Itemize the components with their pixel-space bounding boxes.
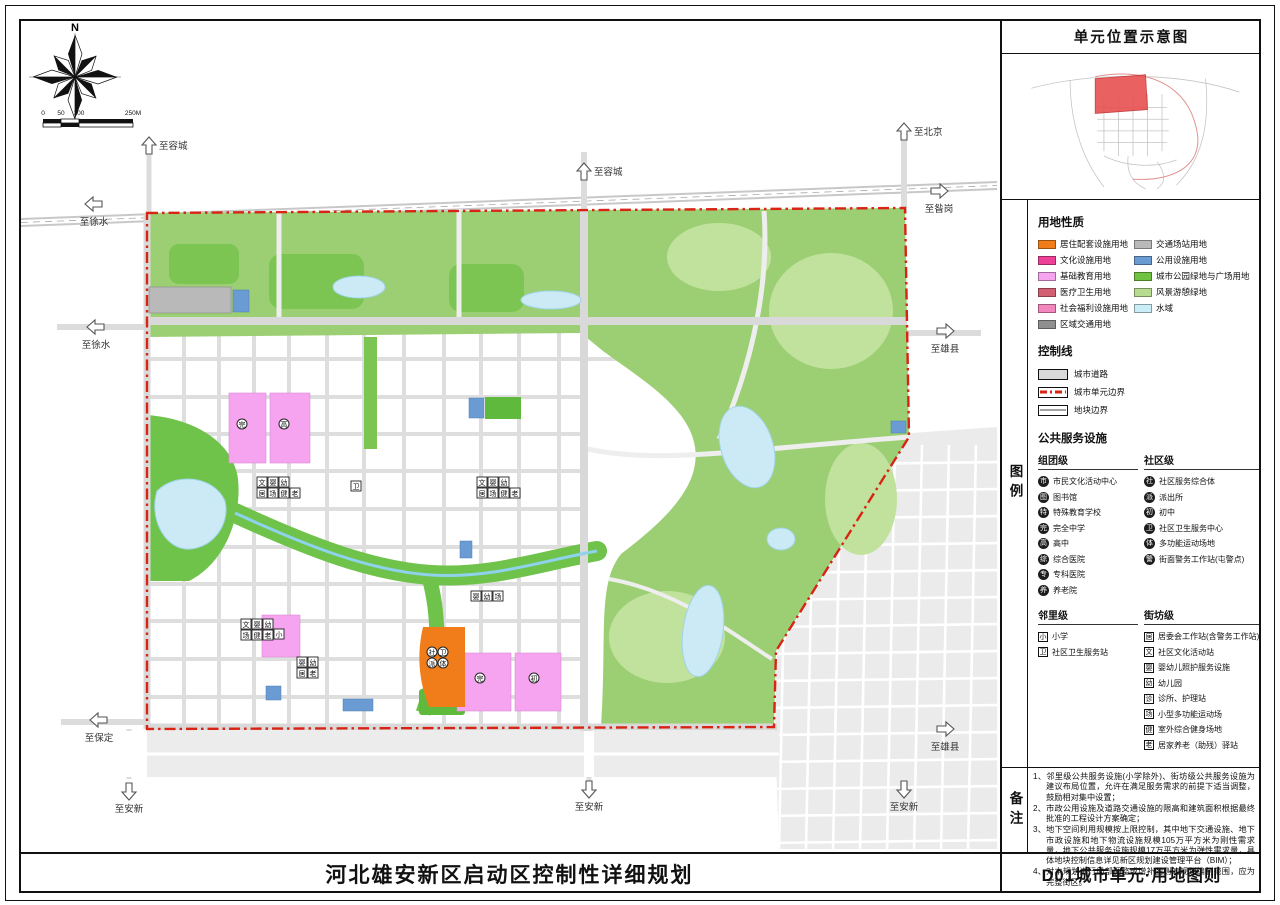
- facility-icon: 社: [1144, 476, 1155, 487]
- facility-marker-char: 健: [501, 489, 508, 498]
- facility-marker-char: 居: [479, 490, 486, 498]
- facility-label: 多功能运动场地: [1159, 538, 1215, 549]
- facility-legend-item: 卫社区卫生服务站: [1038, 645, 1138, 661]
- note-item: 2、市政公用设施及道路交通设施的限高和建筑面积根据最终批准的工程设计方案确定；: [1033, 804, 1255, 825]
- facility-marker-char: 健: [281, 489, 288, 498]
- facility-legend-item: 综综合医院: [1038, 552, 1138, 568]
- facility-legend-item: 居居委会工作站(含警务工作站): [1144, 629, 1259, 645]
- facility-marker-char: 社: [429, 648, 436, 657]
- facility-icon: 高: [1038, 538, 1049, 549]
- facility-legend-item: 健室外综合健身场地: [1144, 722, 1259, 738]
- legend-side-label: 图例: [1002, 200, 1028, 767]
- facility-marker-char: 文: [479, 478, 486, 487]
- facility-marker-cluster: 卫: [351, 481, 361, 491]
- note-item: 1、邻里级公共服务设施(小学除外)、街坊级公共服务设施为建议布局位置，允许在满足…: [1033, 772, 1255, 803]
- facility-marker-char: 幼: [265, 620, 272, 629]
- facility-label: 专科医院: [1053, 569, 1085, 580]
- land-use-title: 用地性质: [1038, 214, 1253, 230]
- south-fringe-strip: [124, 731, 779, 777]
- facility-marker-cluster: 文婴幼居场健老: [477, 477, 520, 498]
- land-use-label: 风景游憩绿地: [1156, 286, 1207, 298]
- facility-label: 诊所、护理站: [1158, 693, 1206, 704]
- master-plan-map: N 至容城至徐水至容城至北京至昝岗至徐水至雄县至保定至雄县至安新至安新至安新文婴…: [19, 19, 1000, 852]
- legend-panel: 图例 用地性质 居住配套设施用地文化设施用地基础教育用地医疗卫生用地社会福利设施…: [1000, 200, 1261, 768]
- facility-marker-char: 婴: [490, 479, 497, 487]
- facility-group: 街坊级居居委会工作站(含警务工作站)文社区文化活动站婴婴幼儿照护服务设施幼幼儿园…: [1144, 607, 1259, 753]
- land-use-label: 交通场站用地: [1156, 238, 1207, 250]
- direction-arrow: 至保定: [85, 713, 114, 744]
- facility-marker-char: 文: [259, 478, 266, 487]
- facility-group-title: 邻里级: [1038, 607, 1138, 625]
- notes-list: 1、邻里级公共服务设施(小学除外)、街坊级公共服务设施为建议布局位置，允许在满足…: [1028, 769, 1260, 851]
- facility-label: 幼儿园: [1158, 678, 1182, 689]
- facility-marker-char: 派: [429, 660, 436, 668]
- land-use-label: 医疗卫生用地: [1060, 286, 1111, 298]
- facility-label: 社区文化活动站: [1158, 647, 1214, 658]
- facility-marker-char: 老: [265, 631, 272, 640]
- facility-marker-cluster: 高: [279, 419, 289, 429]
- facility-icon: 综: [1038, 554, 1049, 565]
- land-use-label: 社会福利设施用地: [1060, 302, 1128, 314]
- facility-marker-char: 高: [281, 420, 288, 429]
- transport-station-block: [149, 287, 231, 313]
- facility-marker-char: 卫: [440, 649, 447, 657]
- sheet-title: D01城市单元·用地图则: [1042, 862, 1222, 886]
- facility-label: 养老院: [1053, 585, 1077, 596]
- facility-legend-item: 场小型多功能运动场: [1144, 707, 1259, 723]
- arrow-label: 至徐水: [80, 216, 109, 228]
- land-use-swatch: [1038, 240, 1056, 249]
- main-title: 河北雄安新区启动区控制性详细规划: [326, 859, 694, 889]
- arrow-glyph: [85, 197, 102, 211]
- scale-label: 0: [41, 110, 45, 117]
- facility-marker-char: 幼: [501, 478, 508, 487]
- facility-icon: 图: [1038, 492, 1049, 503]
- facility-label: 初中: [1159, 507, 1175, 518]
- facility-marker-cluster: 初: [529, 673, 539, 683]
- direction-arrow: 至容城: [577, 163, 623, 180]
- control-line-label: 地块边界: [1074, 404, 1108, 416]
- scale-label: 250M: [125, 110, 141, 117]
- land-use-label: 文化设施用地: [1060, 254, 1111, 266]
- facility-legend-item: 体多功能运动场地: [1144, 536, 1259, 552]
- land-use-swatch: [1038, 256, 1056, 265]
- facility-label: 派出所: [1159, 492, 1183, 503]
- facility-icon: 婴: [1144, 663, 1154, 673]
- direction-arrow: 至徐水: [80, 197, 109, 228]
- arrow-label: 至北京: [914, 126, 943, 138]
- facility-legend-item: 图图书馆: [1038, 490, 1138, 506]
- arrow-label: 至昝岗: [925, 203, 954, 215]
- facility-marker-char: 小: [276, 630, 283, 639]
- direction-arrow: 至昝岗: [925, 184, 954, 215]
- direction-arrow: 至雄县: [931, 324, 960, 355]
- land-use-swatch: [1134, 288, 1152, 297]
- facility-marker-char: 场: [495, 592, 502, 601]
- facility-marker-char: 文: [243, 620, 250, 629]
- facility-icon: 初: [1144, 507, 1155, 518]
- arrow-label: 至容城: [594, 166, 623, 178]
- land-use-legend-item: 医疗卫生用地: [1038, 284, 1134, 300]
- facility-legend-item: 社社区服务综合体: [1144, 474, 1259, 490]
- facility-marker-char: 老: [310, 669, 317, 678]
- arrow-label: 至雄县: [931, 343, 960, 355]
- facility-label: 街面警务工作站(屯警点): [1159, 554, 1244, 565]
- facility-group: 邻里级小小学卫社区卫生服务站: [1038, 607, 1138, 660]
- control-line-legend-item: 地块边界: [1038, 401, 1253, 419]
- facility-icon: 市: [1038, 476, 1049, 487]
- facility-marker-char: 居: [259, 490, 266, 498]
- control-line-legend-item: 城市单元边界: [1038, 383, 1253, 401]
- land-use-legend-item: 交通场站用地: [1134, 236, 1253, 252]
- facility-label: 高中: [1053, 538, 1069, 549]
- green-strip: [364, 337, 377, 449]
- land-use-legend-item: 文化设施用地: [1038, 252, 1134, 268]
- facility-legend-item: 特特殊教育学校: [1038, 505, 1138, 521]
- facility-label: 社区服务综合体: [1159, 476, 1215, 487]
- facility-legend-item: 专专科医院: [1038, 567, 1138, 583]
- location-panel: 单元位置示意图: [1000, 19, 1261, 200]
- facility-marker-char: 健: [254, 631, 261, 640]
- facility-marker-char: 幼: [310, 658, 317, 667]
- facility-marker-char: 场: [243, 631, 250, 640]
- facility-marker-char: 老: [512, 489, 519, 498]
- facility-label: 居委会工作站(含警务工作站): [1158, 631, 1259, 642]
- education-blocks: [229, 393, 561, 711]
- control-line-swatch: [1038, 405, 1068, 416]
- facility-group: 组团级市市民文化活动中心图图书馆特特殊教育学校完完全中学高高中综综合医院专专科医…: [1038, 452, 1138, 598]
- arrow-glyph: [897, 123, 911, 140]
- facility-legend-item: 市市民文化活动中心: [1038, 474, 1138, 490]
- facility-label: 市民文化活动中心: [1053, 476, 1117, 487]
- land-use-legend-item: 水域: [1134, 300, 1253, 316]
- land-use-legend-item: 风景游憩绿地: [1134, 284, 1253, 300]
- facility-icon: 文: [1144, 647, 1154, 657]
- land-use-swatch: [1038, 272, 1056, 281]
- facility-icon: 场: [1144, 709, 1154, 719]
- facility-legend-item: 小小学: [1038, 629, 1138, 645]
- direction-arrow: 至容城: [142, 137, 188, 154]
- arrow-label: 至保定: [85, 732, 114, 744]
- facility-group-title: 街坊级: [1144, 607, 1259, 625]
- facility-marker-cluster: 完: [475, 673, 485, 683]
- facility-icon: 完: [1038, 523, 1049, 534]
- land-use-swatch: [1134, 240, 1152, 249]
- control-line-swatch: [1038, 387, 1068, 398]
- facility-legend-item: 完完全中学: [1038, 521, 1138, 537]
- facility-marker-cluster: 小: [274, 629, 284, 639]
- arrow-glyph: [577, 163, 591, 180]
- facility-legend-item: 老居家养老（助残）驿站: [1144, 738, 1259, 754]
- land-use-legend-item: 社会福利设施用地: [1038, 300, 1134, 316]
- arrow-label: 至安新: [115, 803, 144, 815]
- facility-label: 综合医院: [1053, 554, 1085, 565]
- arrow-label: 至雄县: [931, 741, 960, 753]
- scale-label: 100: [74, 110, 85, 117]
- land-use-label: 区域交通用地: [1060, 318, 1111, 330]
- facility-marker-cluster: 完: [237, 419, 247, 429]
- scale-bar: [43, 119, 133, 127]
- arrow-label: 至安新: [575, 801, 604, 813]
- facility-legend-item: 高高中: [1038, 536, 1138, 552]
- land-use-label: 基础教育用地: [1060, 270, 1111, 282]
- facility-marker-char: 婴: [299, 659, 306, 667]
- facility-marker-cluster: 婴幼场: [471, 591, 503, 601]
- facility-icon: 小: [1038, 632, 1048, 642]
- facility-marker-char: 婴: [254, 621, 261, 629]
- direction-arrow: 至安新: [115, 783, 144, 815]
- facilities-title: 公共服务设施: [1038, 430, 1253, 446]
- land-use-swatch: [1134, 304, 1152, 313]
- main-title-cell: 河北雄安新区启动区控制性详细规划: [19, 852, 1000, 893]
- scale-label: 50: [57, 110, 65, 117]
- facility-group-title: 组团级: [1038, 452, 1138, 470]
- facility-legend-item: 幼幼儿园: [1144, 676, 1259, 692]
- land-use-label: 水域: [1156, 302, 1173, 314]
- facility-marker-char: 居: [299, 670, 306, 678]
- control-lines-title: 控制线: [1038, 343, 1253, 359]
- facility-legend-item: 卫社区卫生服务中心: [1144, 521, 1259, 537]
- land-use-swatch: [1134, 256, 1152, 265]
- facility-marker-char: 幼: [484, 592, 491, 601]
- facility-icon: 专: [1038, 569, 1049, 580]
- land-use-swatch: [1038, 320, 1056, 329]
- arrow-glyph: [582, 781, 596, 798]
- facility-label: 完全中学: [1053, 523, 1085, 534]
- facility-group: 社区级社社区服务综合体派派出所初初中卫社区卫生服务中心体多功能运动场地警街面警务…: [1144, 452, 1259, 567]
- direction-arrow: 至安新: [575, 781, 604, 813]
- facility-marker-char: 幼: [281, 478, 288, 487]
- facility-label: 居家养老（助残）驿站: [1158, 740, 1238, 751]
- facility-label: 小学: [1052, 631, 1068, 642]
- facility-icon: 养: [1038, 585, 1049, 596]
- land-use-legend-item: 城市公园绿地与广场用地: [1134, 268, 1253, 284]
- land-use-legend-item: 公用设施用地: [1134, 252, 1253, 268]
- facility-marker-char: 初: [531, 674, 538, 683]
- facility-icon: 诊: [1144, 694, 1154, 704]
- facility-marker-char: 体: [440, 659, 447, 668]
- facility-marker-char: 婴: [473, 593, 480, 601]
- control-line-label: 城市单元边界: [1074, 386, 1125, 398]
- park-block: [485, 397, 521, 419]
- facility-marker-char: 婴: [270, 479, 277, 487]
- mini-map-unit-highlight: [1095, 75, 1147, 114]
- arrow-label: 至徐水: [82, 339, 111, 351]
- control-line-swatch: [1038, 369, 1068, 380]
- facility-group-title: 社区级: [1144, 452, 1259, 470]
- control-lines-legend: 城市道路城市单元边界地块边界: [1038, 365, 1253, 419]
- facility-label: 特殊教育学校: [1053, 507, 1101, 518]
- location-mini-map: [1012, 58, 1252, 194]
- facility-legend-item: 文社区文化活动站: [1144, 645, 1259, 661]
- arrow-glyph: [122, 783, 136, 800]
- control-line-label: 城市道路: [1074, 368, 1108, 380]
- facility-marker-char: 卫: [353, 483, 360, 491]
- facility-label: 小型多功能运动场: [1158, 709, 1222, 720]
- facility-legend-item: 初初中: [1144, 505, 1259, 521]
- facility-icon: 健: [1144, 725, 1154, 735]
- facility-icon: 居: [1144, 632, 1154, 642]
- facility-icon: 体: [1144, 538, 1155, 549]
- facility-label: 婴幼儿照护服务设施: [1158, 662, 1230, 673]
- facility-marker-char: 老: [292, 489, 299, 498]
- sheet-title-cell: D01城市单元·用地图则: [1000, 852, 1261, 893]
- facility-icon: 幼: [1144, 678, 1154, 688]
- arrow-glyph: [142, 137, 156, 154]
- land-use-legend: 居住配套设施用地文化设施用地基础教育用地医疗卫生用地社会福利设施用地区域交通用地…: [1038, 236, 1253, 332]
- facility-legend-item: 派派出所: [1144, 490, 1259, 506]
- facility-icon: 老: [1144, 740, 1154, 750]
- facility-legend-item: 养养老院: [1038, 583, 1138, 599]
- facility-icon: 卫: [1144, 523, 1155, 534]
- land-use-swatch: [1038, 288, 1056, 297]
- facility-marker-cluster: 文婴幼居场健老: [257, 477, 300, 498]
- land-use-label: 居住配套设施用地: [1060, 238, 1128, 250]
- facility-label: 社区卫生服务站: [1052, 647, 1108, 658]
- arrow-glyph: [87, 320, 104, 334]
- arrow-glyph: [931, 184, 948, 198]
- land-use-legend-item: 基础教育用地: [1038, 268, 1134, 284]
- facility-icon: 卫: [1038, 647, 1048, 657]
- land-use-legend-item: 居住配套设施用地: [1038, 236, 1134, 252]
- facility-marker-char: 场: [490, 489, 497, 498]
- control-line-legend-item: 城市道路: [1038, 365, 1253, 383]
- land-use-swatch: [1134, 272, 1152, 281]
- land-use-label: 公用设施用地: [1156, 254, 1207, 266]
- facility-icon: 特: [1038, 507, 1049, 518]
- notes-panel: 备注 1、邻里级公共服务设施(小学除外)、街坊级公共服务设施为建议布局位置，允许…: [1000, 768, 1261, 852]
- facility-marker-char: 完: [477, 674, 484, 683]
- facility-label: 图书馆: [1053, 492, 1077, 503]
- land-use-swatch: [1038, 304, 1056, 313]
- facility-legend-item: 诊诊所、护理站: [1144, 691, 1259, 707]
- facility-marker-char: 完: [239, 420, 246, 429]
- direction-arrow: 至北京: [897, 123, 943, 140]
- facility-legend-item: 婴婴幼儿照护服务设施: [1144, 660, 1259, 676]
- location-diagram-title: 单元位置示意图: [1002, 19, 1261, 54]
- arrow-label: 至安新: [890, 801, 919, 813]
- notes-side-label: 备注: [1002, 768, 1028, 852]
- facility-legend-item: 警街面警务工作站(屯警点): [1144, 552, 1259, 568]
- facilities-legend: 组团级市市民文化活动中心图图书馆特特殊教育学校完完全中学高高中综综合医院专专科医…: [1038, 452, 1253, 753]
- legend-content: 用地性质 居住配套设施用地文化设施用地基础教育用地医疗卫生用地社会福利设施用地区…: [1028, 200, 1261, 767]
- facility-label: 社区卫生服务中心: [1159, 523, 1223, 534]
- facility-marker-char: 场: [270, 489, 277, 498]
- compass-north-label: N: [71, 22, 79, 34]
- plan-sheet: N 至容城至徐水至容城至北京至昝岗至徐水至雄县至保定至雄县至安新至安新至安新文婴…: [0, 0, 1280, 905]
- land-use-label: 城市公园绿地与广场用地: [1156, 270, 1250, 282]
- arrow-label: 至容城: [159, 140, 188, 152]
- facility-icon: 派: [1144, 492, 1155, 503]
- facility-icon: 警: [1144, 554, 1155, 565]
- facility-label: 室外综合健身场地: [1158, 724, 1222, 735]
- land-use-legend-item: 区域交通用地: [1038, 316, 1134, 332]
